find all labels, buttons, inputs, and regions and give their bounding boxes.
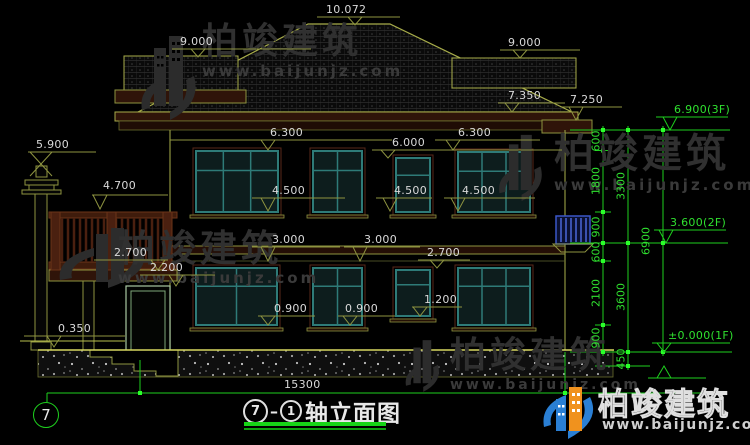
- elevation-marker-0.900: 0.900: [274, 303, 307, 315]
- title-circle-7: 7: [243, 399, 268, 424]
- cad-elevation-drawing: 柏竣建筑 www.baijunjz.com 柏竣建筑 www.baijunjz.…: [0, 0, 750, 445]
- elevation-marker-6.000: 6.000: [392, 137, 425, 149]
- chain-dimension-900: 900: [590, 217, 603, 238]
- title-dash: –: [270, 402, 278, 421]
- elevation-marker-9.000: 9.000: [180, 36, 213, 48]
- elevation-marker-4.500: 4.500: [272, 185, 305, 197]
- elevation-marker-3.6002F: 3.600(2F): [670, 217, 726, 229]
- brand-logo-url: www.baijunjz.com: [602, 417, 750, 433]
- chain-dimension-450: 450: [615, 349, 628, 370]
- elevation-marker-4.700: 4.700: [103, 180, 136, 192]
- elevation-marker-10.072: 10.072: [326, 4, 366, 16]
- title-underline: [244, 422, 386, 426]
- elevation-marker-0.350: 0.350: [58, 323, 91, 335]
- elevation-marker-2.200: 2.200: [150, 262, 183, 274]
- elevation-marker-2.700: 2.700: [114, 247, 147, 259]
- elevation-marker-0.0001F: ±0.000(1F): [668, 330, 734, 342]
- brand-logo: 柏竣建筑 www.baijunjz.com: [540, 381, 750, 443]
- chain-dimension-1800: 1800: [590, 167, 603, 195]
- title-circle-1: 1: [280, 400, 302, 422]
- elevation-marker-1.200: 1.200: [424, 294, 457, 306]
- chain-dimension-600: 600: [590, 131, 603, 152]
- elevation-marker-6.300: 6.300: [458, 127, 491, 139]
- elevation-marker-5.900: 5.900: [36, 139, 69, 151]
- elevation-marker-7.350: 7.350: [508, 90, 541, 102]
- chain-dimension-900: 900: [590, 328, 603, 349]
- chain-dimension-600: 600: [590, 242, 603, 263]
- axis-bubble-label: 7: [41, 406, 51, 424]
- elevation-marker-3.000: 3.000: [364, 234, 397, 246]
- chain-dimension-3300: 3300: [615, 172, 628, 200]
- elevation-marker-9.000: 9.000: [508, 37, 541, 49]
- axis-bubble-7: 7: [33, 402, 59, 428]
- elevation-marker-7.250: 7.250: [570, 94, 603, 106]
- chain-dimension-2100: 2100: [590, 279, 603, 307]
- elevation-marker-6.9003F: 6.900(3F): [674, 104, 730, 116]
- elevation-marker-4.500: 4.500: [394, 185, 427, 197]
- overall-width-dimension: 15300: [284, 379, 321, 391]
- elevation-marker-6.300: 6.300: [270, 127, 303, 139]
- elevation-marker-4.500: 4.500: [462, 185, 495, 197]
- chain-dimension-6900: 6900: [640, 227, 653, 255]
- chain-dimension-3600: 3600: [615, 283, 628, 311]
- title-underline-thin: [244, 428, 386, 430]
- elevation-marker-0.900: 0.900: [345, 303, 378, 315]
- elevation-marker-2.700: 2.700: [427, 247, 460, 259]
- brand-logo-icon: [540, 381, 598, 441]
- elevation-marker-3.000: 3.000: [272, 234, 305, 246]
